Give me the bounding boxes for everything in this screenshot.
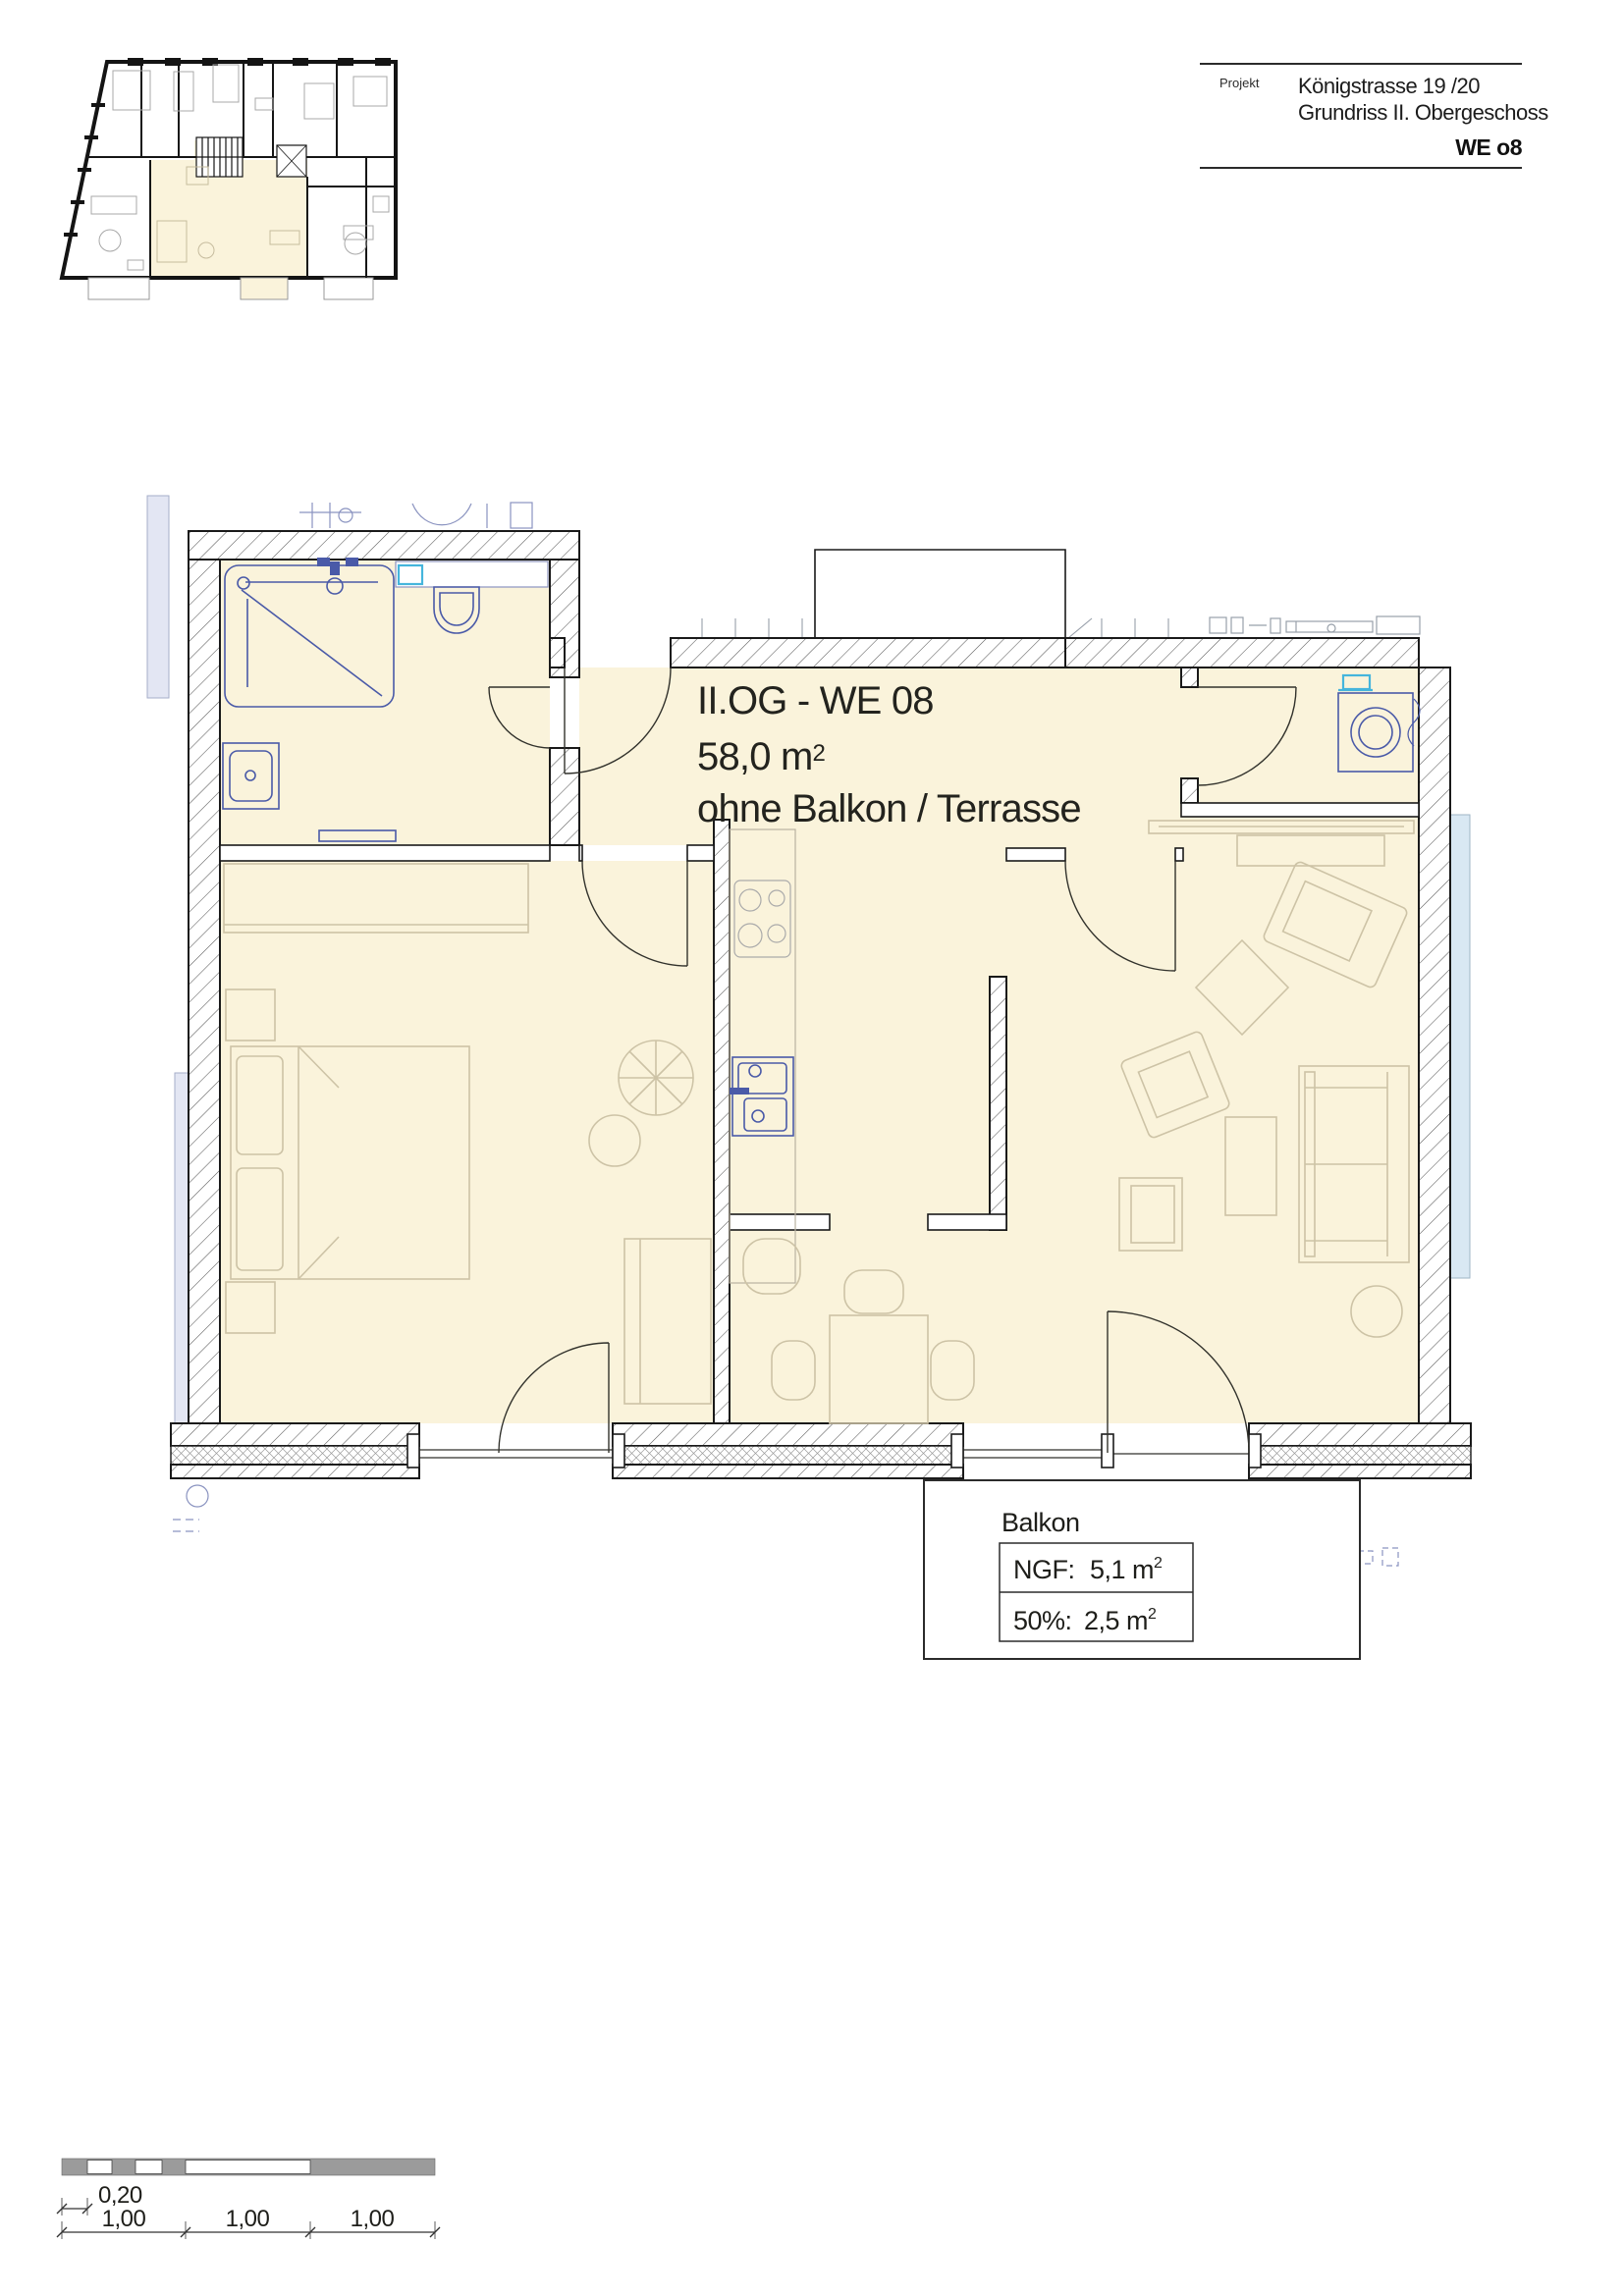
apartment-label-line1: II.OG - WE 08 <box>697 675 1081 727</box>
neighbor-machines <box>1210 616 1420 634</box>
scale-offset-label: 0,20 <box>98 2182 142 2209</box>
scale-segment-label: 1,00 <box>226 2206 270 2232</box>
neighbor-pipes-bottom-left <box>173 1485 208 1531</box>
scale-bar: 0,20 1,00 1,00 1,00 <box>39 2130 520 2268</box>
apartment-label-line3: ohne Balkon / Terrasse <box>697 783 1081 835</box>
apartment-label: II.OG - WE 08 58,0 m2 ohne Balkon / Terr… <box>697 675 1081 835</box>
unit-code: WE o8 <box>1298 134 1522 161</box>
main-floor-plan: Balkon NGF:5,1 m2 50%:2,5 m2 <box>98 412 1492 1728</box>
scale-segment-label: 1,00 <box>351 2206 395 2232</box>
balcony: Balkon NGF:5,1 m2 50%:2,5 m2 <box>924 1480 1360 1659</box>
title-block: Projekt Königstrasse 19 /20 Grundriss II… <box>1200 63 1522 169</box>
balcony-title: Balkon <box>1001 1508 1080 1537</box>
drawing-name: Grundriss II. Obergeschoss <box>1298 99 1522 126</box>
balcony-50-row: 50%:2,5 m2 <box>1013 1606 1157 1635</box>
apartment-label-area: 58,0 m2 <box>697 727 1081 783</box>
overview-balcony <box>88 278 149 299</box>
overview-balcony <box>324 278 373 299</box>
floorplan-sheet: Projekt Königstrasse 19 /20 Grundriss II… <box>0 0 1624 2296</box>
shaft-outline <box>815 550 1065 638</box>
project-name: Königstrasse 19 /20 <box>1298 73 1522 99</box>
overview-plan <box>59 39 398 304</box>
scale-segment-label: 1,00 <box>102 2206 146 2232</box>
neighbor-bath-fixtures <box>299 503 532 528</box>
project-field-label: Projekt <box>1219 76 1259 90</box>
